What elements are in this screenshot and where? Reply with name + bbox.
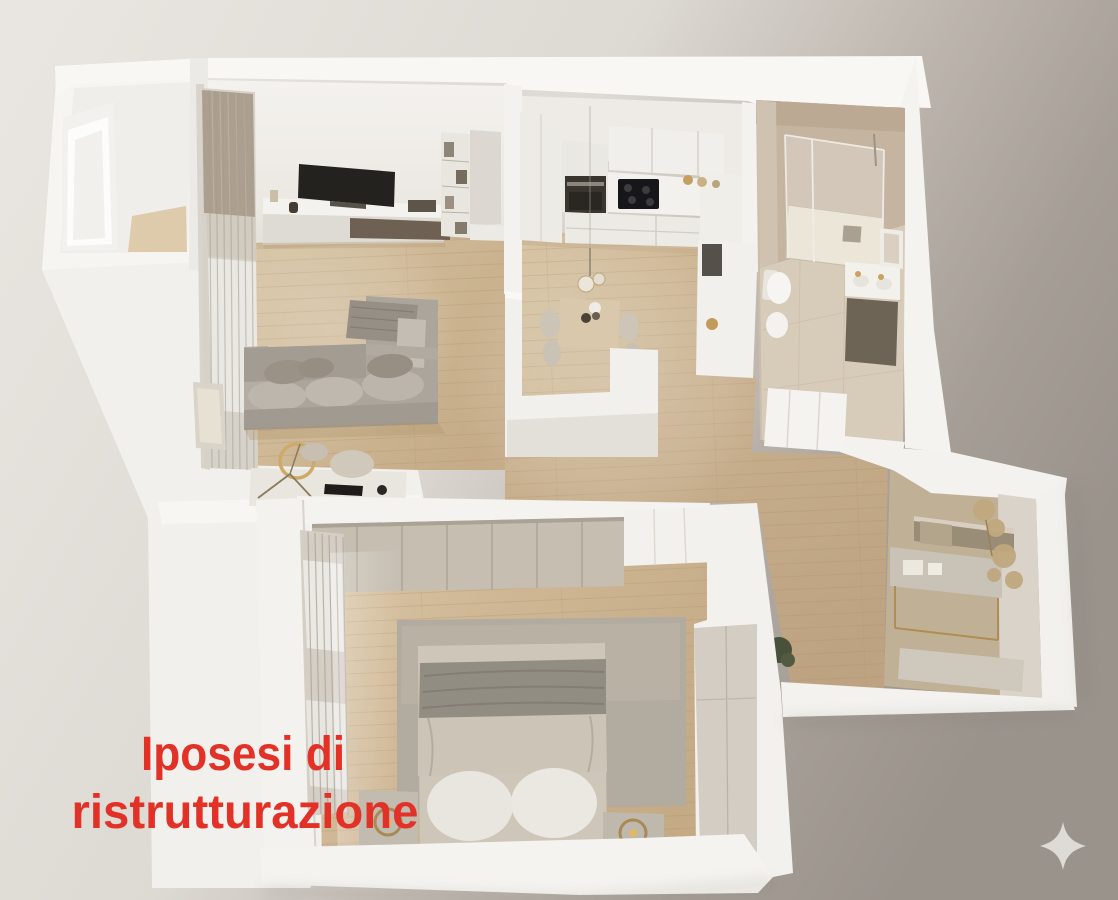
svg-text:Iposesi di: Iposesi di: [141, 728, 345, 781]
svg-text:ristrutturazione: ristrutturazione: [72, 786, 419, 839]
